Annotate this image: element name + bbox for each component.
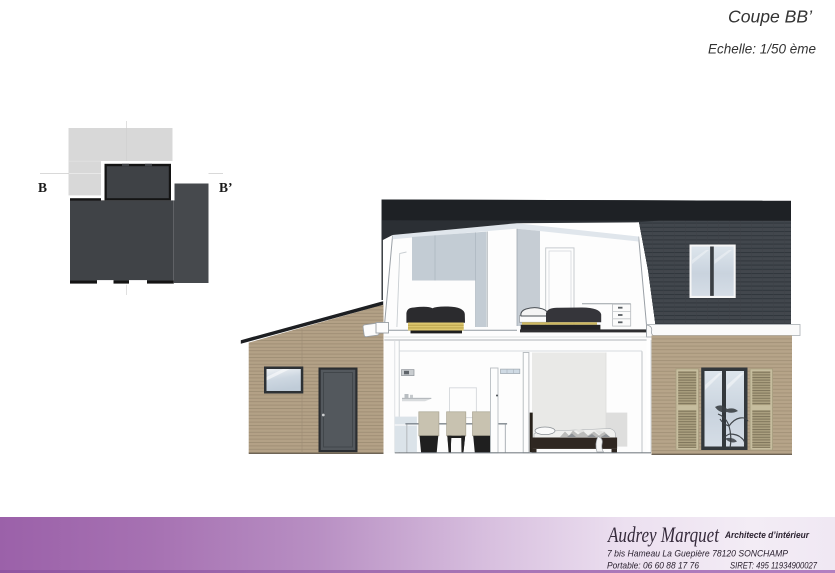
svg-text:Architecte d’intérieur: Architecte d’intérieur [724, 530, 810, 541]
svg-text:Audrey Marquet: Audrey Marquet [606, 522, 719, 547]
svg-text:Portable: 06 60 88 17 76: Portable: 06 60 88 17 76 [607, 561, 700, 572]
svg-text:B’: B’ [219, 180, 233, 195]
svg-text:7 bis Hameau La Guepière 78120: 7 bis Hameau La Guepière 78120 SONCHAMP [607, 549, 789, 560]
svg-text:Echelle: 1/50 ème: Echelle: 1/50 ème [708, 42, 816, 57]
svg-text:B: B [38, 180, 47, 195]
svg-text:Coupe BB’: Coupe BB’ [728, 7, 813, 27]
svg-text:SIRET: 495 11934900027: SIRET: 495 11934900027 [730, 561, 818, 572]
